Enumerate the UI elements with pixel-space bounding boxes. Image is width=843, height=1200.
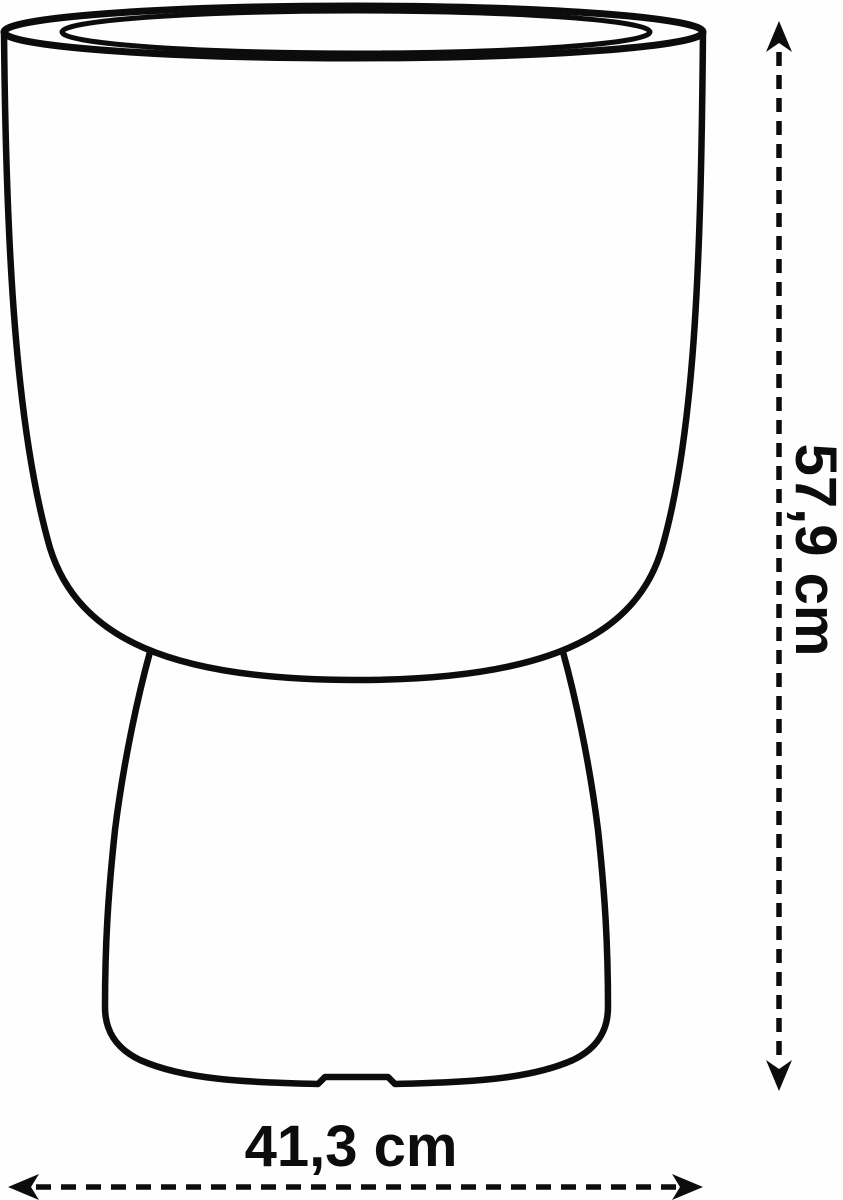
arrow-right-icon — [672, 1174, 703, 1200]
arrow-up-icon — [766, 21, 792, 52]
diagram-canvas: 57,9 cm 41,3 cm — [0, 0, 843, 1200]
arrow-left-icon — [8, 1174, 39, 1200]
height-dimension-label: 57,9 cm — [783, 444, 843, 657]
pot-drawing — [4, 6, 703, 1084]
arrow-down-icon — [766, 1060, 792, 1091]
pot-rim-outer-ellipse — [4, 6, 703, 58]
height-dimension: 57,9 cm — [766, 21, 843, 1091]
pot-bowl-outline — [4, 32, 703, 680]
dimension-diagram: 57,9 cm 41,3 cm — [0, 0, 843, 1200]
width-dimension-label: 41,3 cm — [245, 1114, 458, 1179]
width-dimension: 41,3 cm — [8, 1114, 703, 1200]
pot-base-outline — [105, 652, 608, 1084]
pot-rim-inner-ellipse — [62, 11, 650, 53]
